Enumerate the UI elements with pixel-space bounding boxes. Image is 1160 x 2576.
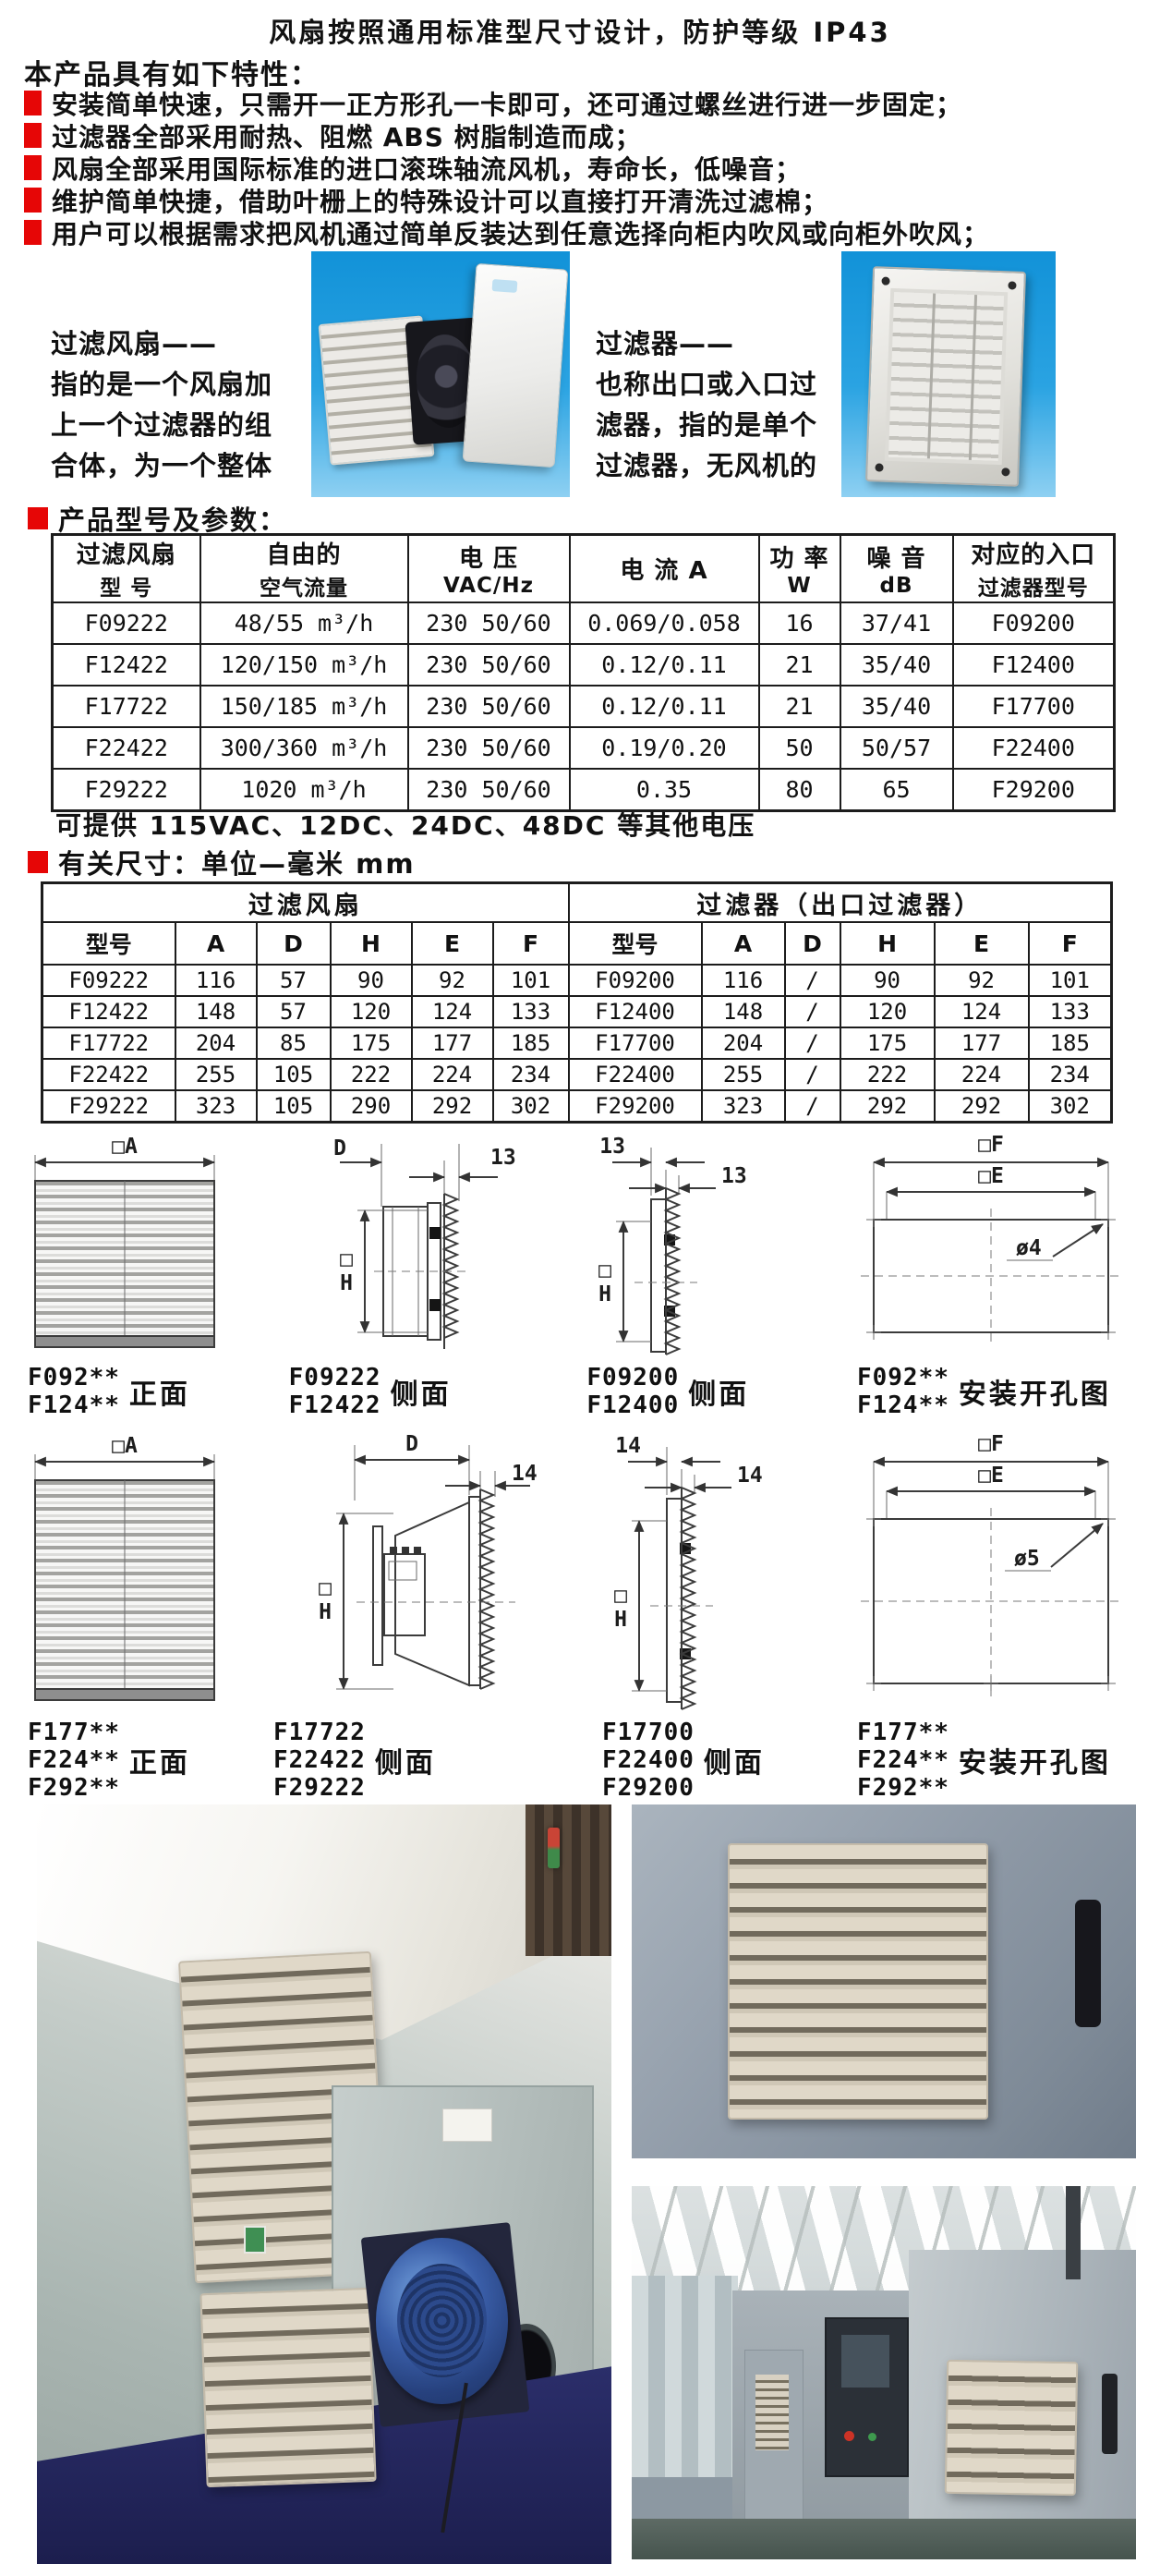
table-row: F29222323105290292302F29200323/292292302	[42, 1090, 1112, 1123]
table-cell: 204	[175, 1027, 257, 1059]
table-cell: 37/41	[840, 602, 953, 644]
dimension-label: □F	[978, 1135, 1004, 1157]
table-cell: F22400	[953, 727, 1115, 769]
table-cell: 21	[759, 644, 840, 686]
table-cell: 230 50/60	[408, 769, 570, 811]
table-cell: 35/40	[840, 644, 953, 686]
table-cell: 255	[175, 1059, 257, 1090]
filter-product-photo	[841, 251, 1056, 497]
model-code: F12400	[586, 1391, 679, 1419]
group-header-row: 过滤风扇 过滤器（出口过滤器）	[42, 883, 1112, 923]
view-label: 安装开孔图	[959, 1740, 1111, 1780]
table-cell: 50/57	[840, 727, 953, 769]
table-row: F12422120/150 m³/h230 50/600.12/0.112135…	[53, 644, 1115, 686]
filter-fan-description: 过滤风扇—— 指的是一个风扇加 上一个过滤器的组 合体，为一个整体	[51, 251, 311, 497]
table-cell: 0.069/0.058	[570, 602, 759, 644]
model-code: F224**	[28, 1746, 120, 1774]
drawing-side-view: D 14 □H	[273, 1434, 550, 1802]
column-header: 对应的入口过滤器型号	[953, 535, 1115, 603]
table-cell: 48/55 m³/h	[200, 602, 408, 644]
dimension-label: 14	[512, 1462, 538, 1486]
drawing-caption: F17722 F22422 F29222 侧面	[273, 1719, 436, 1802]
column-header: A	[175, 922, 257, 965]
table-cell: 116	[702, 965, 785, 996]
product-overview: 过滤风扇—— 指的是一个风扇加 上一个过滤器的组 合体，为一个整体 过滤器—— …	[51, 251, 1111, 497]
table-cell: F17700	[569, 1027, 702, 1059]
dimension-label: 13	[600, 1135, 626, 1159]
table-cell: /	[785, 1059, 840, 1090]
table-cell: F09200	[569, 965, 702, 996]
table-cell: 292	[412, 1090, 493, 1123]
dimension-label: 13	[721, 1164, 747, 1188]
table-cell: 234	[493, 1059, 569, 1090]
feature-text: 用户可以根据需求把风机通过简单反装达到任意选择向柜内吹风或向柜外吹风；	[52, 214, 989, 251]
filter-back-part	[865, 266, 1026, 486]
red-square-bullet-icon	[24, 123, 42, 148]
filter-frame-part	[462, 263, 568, 468]
table-row: F22422255105222224234F22400255/222224234	[42, 1059, 1112, 1090]
table-cell: 148	[702, 996, 785, 1027]
view-label: 侧面	[391, 1371, 452, 1412]
table-cell: 292	[840, 1090, 935, 1123]
model-code: F12422	[289, 1391, 381, 1419]
table-cell: 222	[331, 1059, 412, 1090]
column-header: 噪 音dB	[840, 535, 953, 603]
table-cell: 150/185 m³/h	[200, 686, 408, 727]
table-cell: 120	[840, 996, 935, 1027]
screw-dot	[882, 276, 890, 285]
column-header: 功 率W	[759, 535, 840, 603]
table-cell: 175	[840, 1027, 935, 1059]
group-header: 过滤风扇	[42, 883, 569, 923]
table-cell: /	[785, 965, 840, 996]
drawing-caption: F09200 F12400 侧面	[586, 1364, 749, 1419]
hanging-pole	[1066, 2186, 1081, 2279]
table-row: F292221020 m³/h230 50/600.358065F29200	[53, 769, 1115, 811]
red-square-bullet-icon	[28, 851, 48, 873]
table-cell: F12400	[953, 644, 1115, 686]
table-cell: 302	[493, 1090, 569, 1123]
window-wall	[632, 2276, 738, 2477]
view-label: 侧面	[704, 1740, 765, 1780]
column-header: 过滤风扇型 号	[53, 535, 200, 603]
table-cell: F29222	[42, 1090, 175, 1123]
model-code: F177**	[28, 1719, 120, 1746]
description-line: 过滤器，无风机的	[596, 445, 841, 486]
table-cell: F17700	[953, 686, 1115, 727]
table-cell: 255	[702, 1059, 785, 1090]
table-cell: 80	[759, 769, 840, 811]
column-header: D	[257, 922, 331, 965]
model-code: F17722	[273, 1719, 366, 1746]
feature-item: 安装简单快速，只需开一正方形孔一卡即可，还可通过螺丝进行进一步固定；	[24, 87, 989, 119]
column-header: H	[331, 922, 412, 965]
group-header: 过滤器（出口过滤器）	[569, 883, 1112, 923]
table-row: F1242214857120124133F12400148/120124133	[42, 996, 1112, 1027]
installation-photo-cabinet	[37, 1804, 611, 2564]
installation-photo-filter-closeup	[632, 1804, 1136, 2158]
description-line: 指的是一个风扇加	[51, 364, 311, 405]
table-cell: F17722	[53, 686, 200, 727]
feature-item: 用户可以根据需求把风机通过简单反装达到任意选择向柜内吹风或向柜外吹风；	[24, 216, 989, 249]
table-row: F09222116579092101F09200116/9092101	[42, 965, 1112, 996]
view-label: 安装开孔图	[959, 1371, 1111, 1412]
table-cell: 116	[175, 965, 257, 996]
spec-header-row: 过滤风扇型 号 自由的空气流量 电 压VAC/Hz 电 流 A 功 率W 噪 音…	[53, 535, 1115, 603]
table-cell: 234	[1029, 1059, 1112, 1090]
model-code: F22400	[602, 1746, 695, 1774]
table-cell: 35/40	[840, 686, 953, 727]
table-row: F17722150/185 m³/h230 50/600.12/0.112135…	[53, 686, 1115, 727]
table-cell: 133	[493, 996, 569, 1027]
table-cell: 1020 m³/h	[200, 769, 408, 811]
table-cell: F12422	[53, 644, 200, 686]
column-header: E	[412, 922, 493, 965]
drawing-front-view: □A F177** F224** F292** 正面	[28, 1434, 222, 1802]
drawing-caption: F092** F124** 正面	[28, 1364, 190, 1419]
filter-fan-product-photo	[311, 251, 570, 497]
table-cell: 124	[935, 996, 1029, 1027]
table-cell: 101	[493, 965, 569, 996]
drawing-mounting-cutout: □F □E ø5	[857, 1434, 1125, 1802]
table-cell: F22422	[53, 727, 200, 769]
emergency-button	[844, 2431, 854, 2441]
view-label: 正面	[129, 1371, 190, 1412]
screw-dot	[1009, 281, 1017, 289]
table-cell: 148	[175, 996, 257, 1027]
description-line: 过滤风扇——	[51, 323, 311, 364]
drawing-side-view: D 13 □H F09222	[289, 1135, 520, 1419]
feature-text: 过滤器全部采用耐热、阻燃 ABS 树脂制造而成；	[52, 117, 642, 154]
table-cell: 105	[257, 1059, 331, 1090]
product-spec-page: 风扇按照通用标准型尺寸设计，防护等级 IP43 本产品具有如下特性： 安装简单快…	[0, 0, 1160, 2576]
description-line: 过滤器——	[596, 323, 841, 364]
table-row: F1772220485175177185F17700204/175177185	[42, 1027, 1112, 1059]
column-header: H	[840, 922, 935, 965]
dimension-label: D	[405, 1434, 418, 1456]
table-cell: 124	[412, 996, 493, 1027]
dimension-label: □H	[609, 1584, 633, 1632]
table-cell: F29200	[953, 769, 1115, 811]
drawings-row-2: □A F177** F224** F292** 正面 D 14	[0, 1434, 1160, 1802]
dimensions-table: 过滤风扇 过滤器（出口过滤器） 型号 A D H E F 型号 A D H E …	[41, 881, 1113, 1124]
table-cell: 224	[412, 1059, 493, 1090]
feature-item: 风扇全部采用国际标准的进口滚珠轴流风机，寿命长，低噪音；	[24, 152, 989, 184]
model-code: F09222	[289, 1364, 381, 1391]
model-code: F092**	[857, 1364, 949, 1391]
table-cell: 101	[1029, 965, 1112, 996]
dimensions-section-heading: 有关尺寸：单位—毫米 mm	[28, 843, 416, 881]
drawing-caption: F177** F224** F292** 正面	[28, 1719, 190, 1802]
model-code: F124**	[857, 1391, 949, 1419]
dimension-label: 14	[615, 1434, 641, 1458]
control-panel	[825, 2317, 909, 2477]
dimension-label: □F	[978, 1434, 1004, 1456]
table-cell: /	[785, 1027, 840, 1059]
filter-grille	[944, 2360, 1077, 2496]
view-label: 侧面	[688, 1371, 749, 1412]
feature-text: 安装简单快速，只需开一正方形孔一卡即可，还可通过螺丝进行进一步固定；	[52, 85, 962, 122]
model-code: F224**	[857, 1746, 949, 1774]
table-cell: 0.35	[570, 769, 759, 811]
table-cell: F29200	[569, 1090, 702, 1123]
section-title: 有关尺寸：单位—毫米 mm	[58, 843, 416, 881]
column-header: F	[493, 922, 569, 965]
background-shelf	[526, 1804, 611, 1956]
model-code: F092**	[28, 1364, 120, 1391]
table-cell: F09222	[53, 602, 200, 644]
drawing-caption: F09222 F12422 侧面	[289, 1364, 452, 1419]
column-header: 电 流 A	[570, 535, 759, 603]
table-cell: F12400	[569, 996, 702, 1027]
description-line: 也称出口或入口过	[596, 364, 841, 405]
table-cell: 120/150 m³/h	[200, 644, 408, 686]
table-cell: /	[785, 1090, 840, 1123]
description-line: 滤器，指的是单个	[596, 405, 841, 445]
column-header: 型号	[42, 922, 175, 965]
table-cell: 300/360 m³/h	[200, 727, 408, 769]
table-cell: 323	[702, 1090, 785, 1123]
signal-lamp	[548, 1828, 560, 1868]
feature-text: 风扇全部采用国际标准的进口滚珠轴流风机，寿命长，低噪音；	[52, 150, 802, 187]
workshop-floor	[632, 2519, 1136, 2559]
table-cell: 230 50/60	[408, 686, 570, 727]
table-cell: 50	[759, 727, 840, 769]
view-label: 侧面	[375, 1740, 436, 1780]
table-cell: 120	[331, 996, 412, 1027]
red-square-bullet-icon	[24, 220, 42, 245]
table-cell: 177	[412, 1027, 493, 1059]
installation-photo-workshop	[632, 2186, 1136, 2559]
table-cell: 224	[935, 1059, 1029, 1090]
centrifugal-blower-fan	[376, 2238, 508, 2405]
section-title: 产品型号及参数：	[58, 499, 287, 538]
drawing-filter-side-view: 13 13 □H F09200	[586, 1135, 790, 1419]
model-code: F177**	[857, 1719, 949, 1746]
table-cell: 105	[257, 1090, 331, 1123]
column-header: F	[1029, 922, 1112, 965]
spec-section-heading: 产品型号及参数：	[28, 499, 287, 538]
dimension-label: ø5	[1014, 1547, 1040, 1571]
table-cell: 185	[493, 1027, 569, 1059]
dimension-label: 14	[737, 1464, 763, 1488]
drawings-row-1: □A F092** F124** 正面 D 13	[0, 1135, 1160, 1419]
table-cell: 177	[935, 1027, 1029, 1059]
view-label: 正面	[129, 1740, 190, 1780]
page-title: 风扇按照通用标准型尺寸设计，防护等级 IP43	[0, 11, 1160, 50]
model-code: F29222	[273, 1774, 366, 1802]
dimension-label: □E	[978, 1464, 1004, 1488]
model-code: F292**	[28, 1774, 120, 1802]
dimension-label: □A	[112, 1434, 138, 1458]
red-square-bullet-icon	[24, 91, 42, 115]
table-cell: F17722	[42, 1027, 175, 1059]
table-cell: 133	[1029, 996, 1112, 1027]
dimension-label: □H	[334, 1247, 358, 1295]
dimension-label: □A	[112, 1135, 138, 1159]
dimension-label: 13	[490, 1146, 516, 1170]
table-cell: 292	[935, 1090, 1029, 1123]
filter-grille	[728, 1843, 988, 2120]
model-code: F292**	[857, 1774, 949, 1802]
handle-slot	[1075, 1900, 1100, 2027]
spec-table: 过滤风扇型 号 自由的空气流量 电 压VAC/Hz 电 流 A 功 率W 噪 音…	[51, 533, 1116, 812]
label-sticker	[442, 2108, 492, 2142]
description-line: 合体，为一个整体	[51, 445, 311, 486]
dimension-label: □H	[593, 1258, 617, 1306]
table-cell: 204	[702, 1027, 785, 1059]
table-cell: F09222	[42, 965, 175, 996]
table-cell: 57	[257, 996, 331, 1027]
column-header: 电 压VAC/Hz	[408, 535, 570, 603]
machine-cabinet	[744, 2350, 804, 2523]
table-cell: 185	[1029, 1027, 1112, 1059]
model-code: F29200	[602, 1774, 695, 1802]
dimension-label: □H	[313, 1576, 337, 1624]
table-cell: F22400	[569, 1059, 702, 1090]
feature-item: 维护简单快捷，借助叶栅上的特殊设计可以直接打开清洗过滤棉；	[24, 184, 989, 216]
drawing-caption: F17700 F22400 F29200 侧面	[602, 1719, 765, 1802]
table-cell: 302	[1029, 1090, 1112, 1123]
dimension-label: ø4	[1016, 1236, 1042, 1260]
table-cell: 65	[840, 769, 953, 811]
feature-item: 过滤器全部采用耐热、阻燃 ABS 树脂制造而成；	[24, 119, 989, 152]
table-cell: 0.19/0.20	[570, 727, 759, 769]
model-code: F17700	[602, 1719, 695, 1746]
dimension-label: D	[333, 1136, 346, 1160]
filter-mesh	[885, 287, 1008, 465]
table-cell: 230 50/60	[408, 644, 570, 686]
description-line: 上一个过滤器的组	[51, 405, 311, 445]
filter-grille	[200, 2288, 378, 2487]
column-header: A	[702, 922, 785, 965]
table-cell: 0.12/0.11	[570, 686, 759, 727]
red-square-bullet-icon	[24, 155, 42, 180]
table-cell: 290	[331, 1090, 412, 1123]
feature-text: 维护简单快捷，借助叶栅上的特殊设计可以直接打开清洗过滤棉；	[52, 182, 828, 219]
table-cell: 90	[840, 965, 935, 996]
model-code: F09200	[586, 1364, 679, 1391]
model-code: F22422	[273, 1746, 366, 1774]
table-cell: 230 50/60	[408, 727, 570, 769]
table-cell: F09200	[953, 602, 1115, 644]
table-cell: 0.12/0.11	[570, 644, 759, 686]
table-cell: 230 50/60	[408, 602, 570, 644]
table-cell: 323	[175, 1090, 257, 1123]
table-cell: 92	[935, 965, 1029, 996]
drawing-caption: F092** F124** 安装开孔图	[857, 1364, 1111, 1419]
red-square-bullet-icon	[24, 188, 42, 213]
voltage-footnote: 可提供 115VAC、12DC、24DC、48DC 等其他电压	[55, 806, 755, 843]
column-header: 型号	[569, 922, 702, 965]
table-cell: 85	[257, 1027, 331, 1059]
table-row: F22422300/360 m³/h230 50/600.19/0.205050…	[53, 727, 1115, 769]
features-list: 安装简单快速，只需开一正方形孔一卡即可，还可通过螺丝进行进一步固定； 过滤器全部…	[24, 87, 989, 249]
dimension-label: □E	[978, 1164, 1004, 1188]
table-cell: F22422	[42, 1059, 175, 1090]
table-cell: 175	[331, 1027, 412, 1059]
handle-slot	[1102, 2374, 1118, 2454]
table-cell: 57	[257, 965, 331, 996]
table-cell: 90	[331, 965, 412, 996]
column-header: D	[785, 922, 840, 965]
table-cell: 16	[759, 602, 840, 644]
screw-dot	[1002, 467, 1010, 475]
screw-dot	[876, 463, 884, 471]
drawing-front-view: □A F092** F124** 正面	[28, 1135, 222, 1419]
table-cell: 92	[412, 965, 493, 996]
red-square-bullet-icon	[28, 507, 48, 529]
drawing-mounting-cutout: □F □E ø4	[857, 1135, 1125, 1419]
table-row: F0922248/55 m³/h230 50/600.069/0.0581637…	[53, 602, 1115, 644]
drawing-filter-side-view: 14 14 □H F17700	[602, 1434, 805, 1802]
table-cell: F29222	[53, 769, 200, 811]
drawing-caption: F177** F224** F292** 安装开孔图	[857, 1719, 1111, 1802]
table-cell: 21	[759, 686, 840, 727]
table-cell: /	[785, 996, 840, 1027]
model-code: F124**	[28, 1391, 120, 1419]
filter-description: 过滤器—— 也称出口或入口过 滤器，指的是单个 过滤器，无风机的	[596, 251, 841, 497]
table-cell: F12422	[42, 996, 175, 1027]
green-sticker	[244, 2226, 266, 2254]
table-cell: 222	[840, 1059, 935, 1090]
sub-header-row: 型号 A D H E F 型号 A D H E F	[42, 922, 1112, 965]
column-header: 自由的空气流量	[200, 535, 408, 603]
column-header: E	[935, 922, 1029, 965]
start-button	[868, 2433, 876, 2441]
machine-cabinet	[909, 2250, 1136, 2559]
